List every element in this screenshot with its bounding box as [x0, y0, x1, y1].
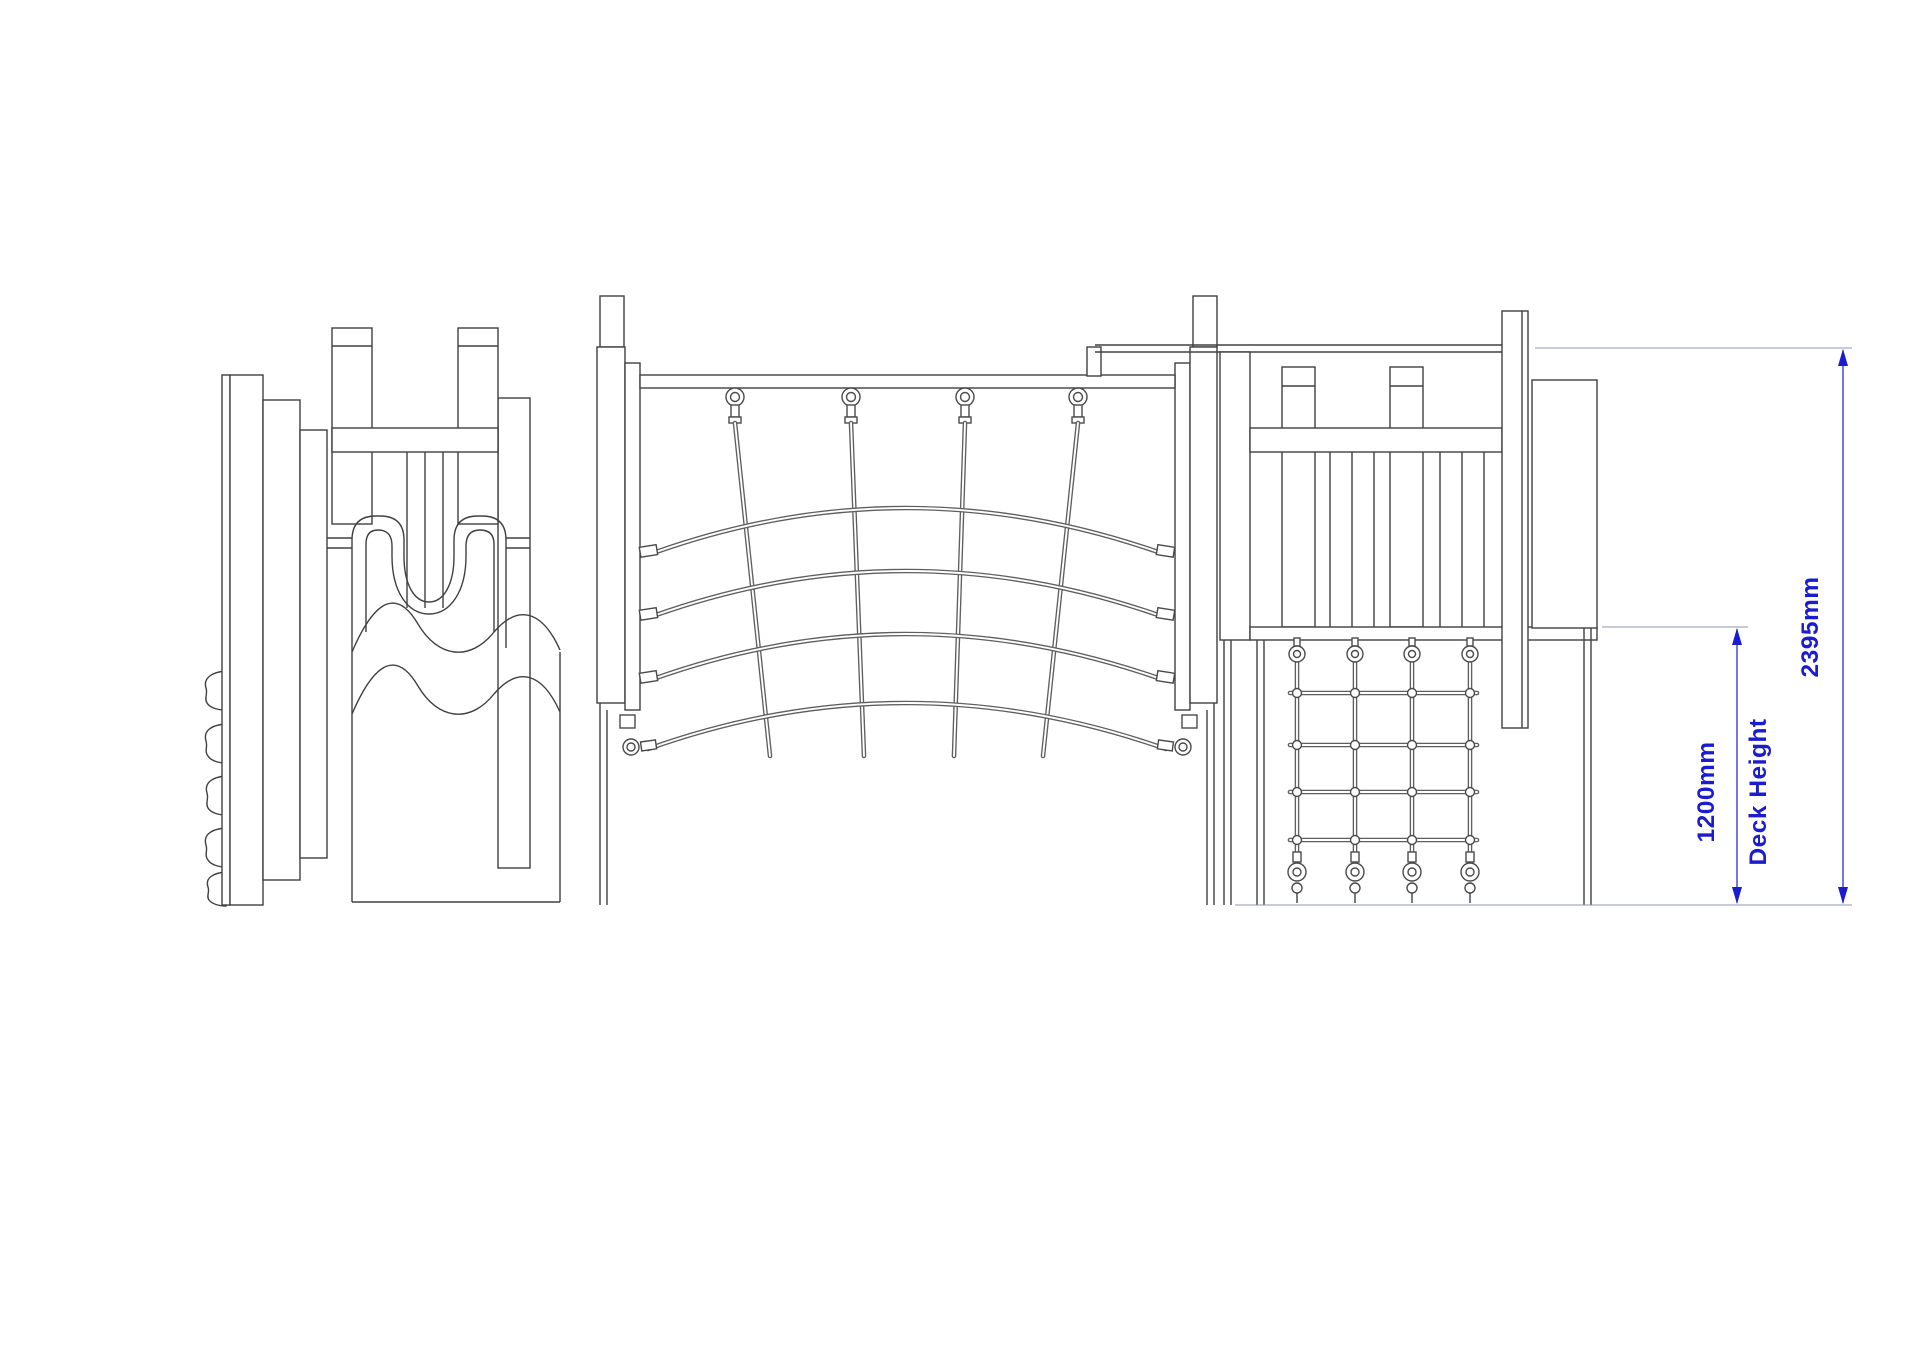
drawing-canvas: 2395mm 1200mm Deck Height	[0, 0, 1920, 1346]
railing-post	[1390, 367, 1423, 627]
bridge-post-right	[1190, 347, 1217, 703]
plank	[1532, 380, 1597, 628]
plank	[300, 430, 327, 858]
deck-height-name-label: Deck Height	[1745, 718, 1772, 865]
bridge-post-right-plank	[1175, 363, 1190, 710]
bridge-post-cap	[600, 296, 624, 347]
railing-post	[458, 328, 498, 524]
bridge-post-left-plank	[625, 363, 640, 710]
bridge-top-bar	[640, 375, 1175, 388]
railing-top-rail	[332, 428, 498, 452]
plank	[498, 398, 530, 868]
plank	[230, 375, 263, 905]
plank	[263, 400, 300, 880]
plank	[1220, 352, 1250, 640]
anchor-eyebolt-icon	[623, 739, 639, 755]
plank	[1502, 311, 1528, 728]
playground-technical-drawing: 2395mm 1200mm Deck Height	[0, 0, 1920, 1346]
bridge-post-left	[597, 347, 625, 703]
railing-post	[332, 328, 372, 524]
deck-band	[1250, 627, 1597, 640]
deck-height-value-label: 1200mm	[1693, 741, 1720, 842]
anchor-eyebolt-icon	[1175, 739, 1191, 755]
railing-top-rail	[1250, 428, 1502, 452]
overall-height-label: 2395mm	[1797, 576, 1824, 677]
bridge-post-cap	[1193, 296, 1217, 347]
plank-edge	[222, 375, 230, 905]
railing-post	[1282, 367, 1315, 627]
